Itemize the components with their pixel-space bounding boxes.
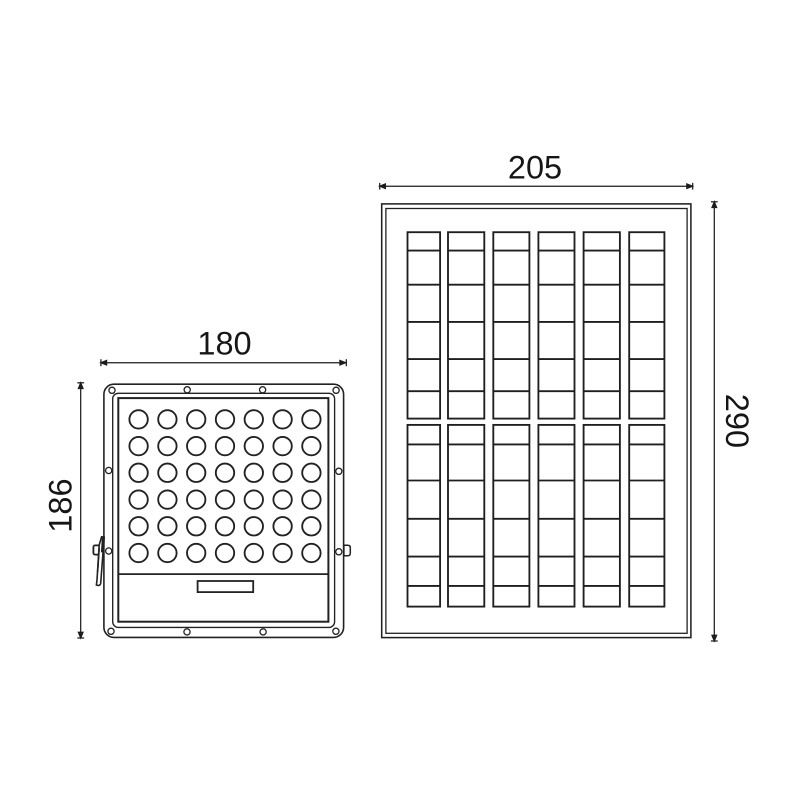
svg-text:205: 205 [508, 149, 562, 185]
svg-text:180: 180 [197, 326, 251, 362]
svg-text:186: 186 [43, 478, 79, 532]
svg-text:290: 290 [719, 394, 755, 448]
